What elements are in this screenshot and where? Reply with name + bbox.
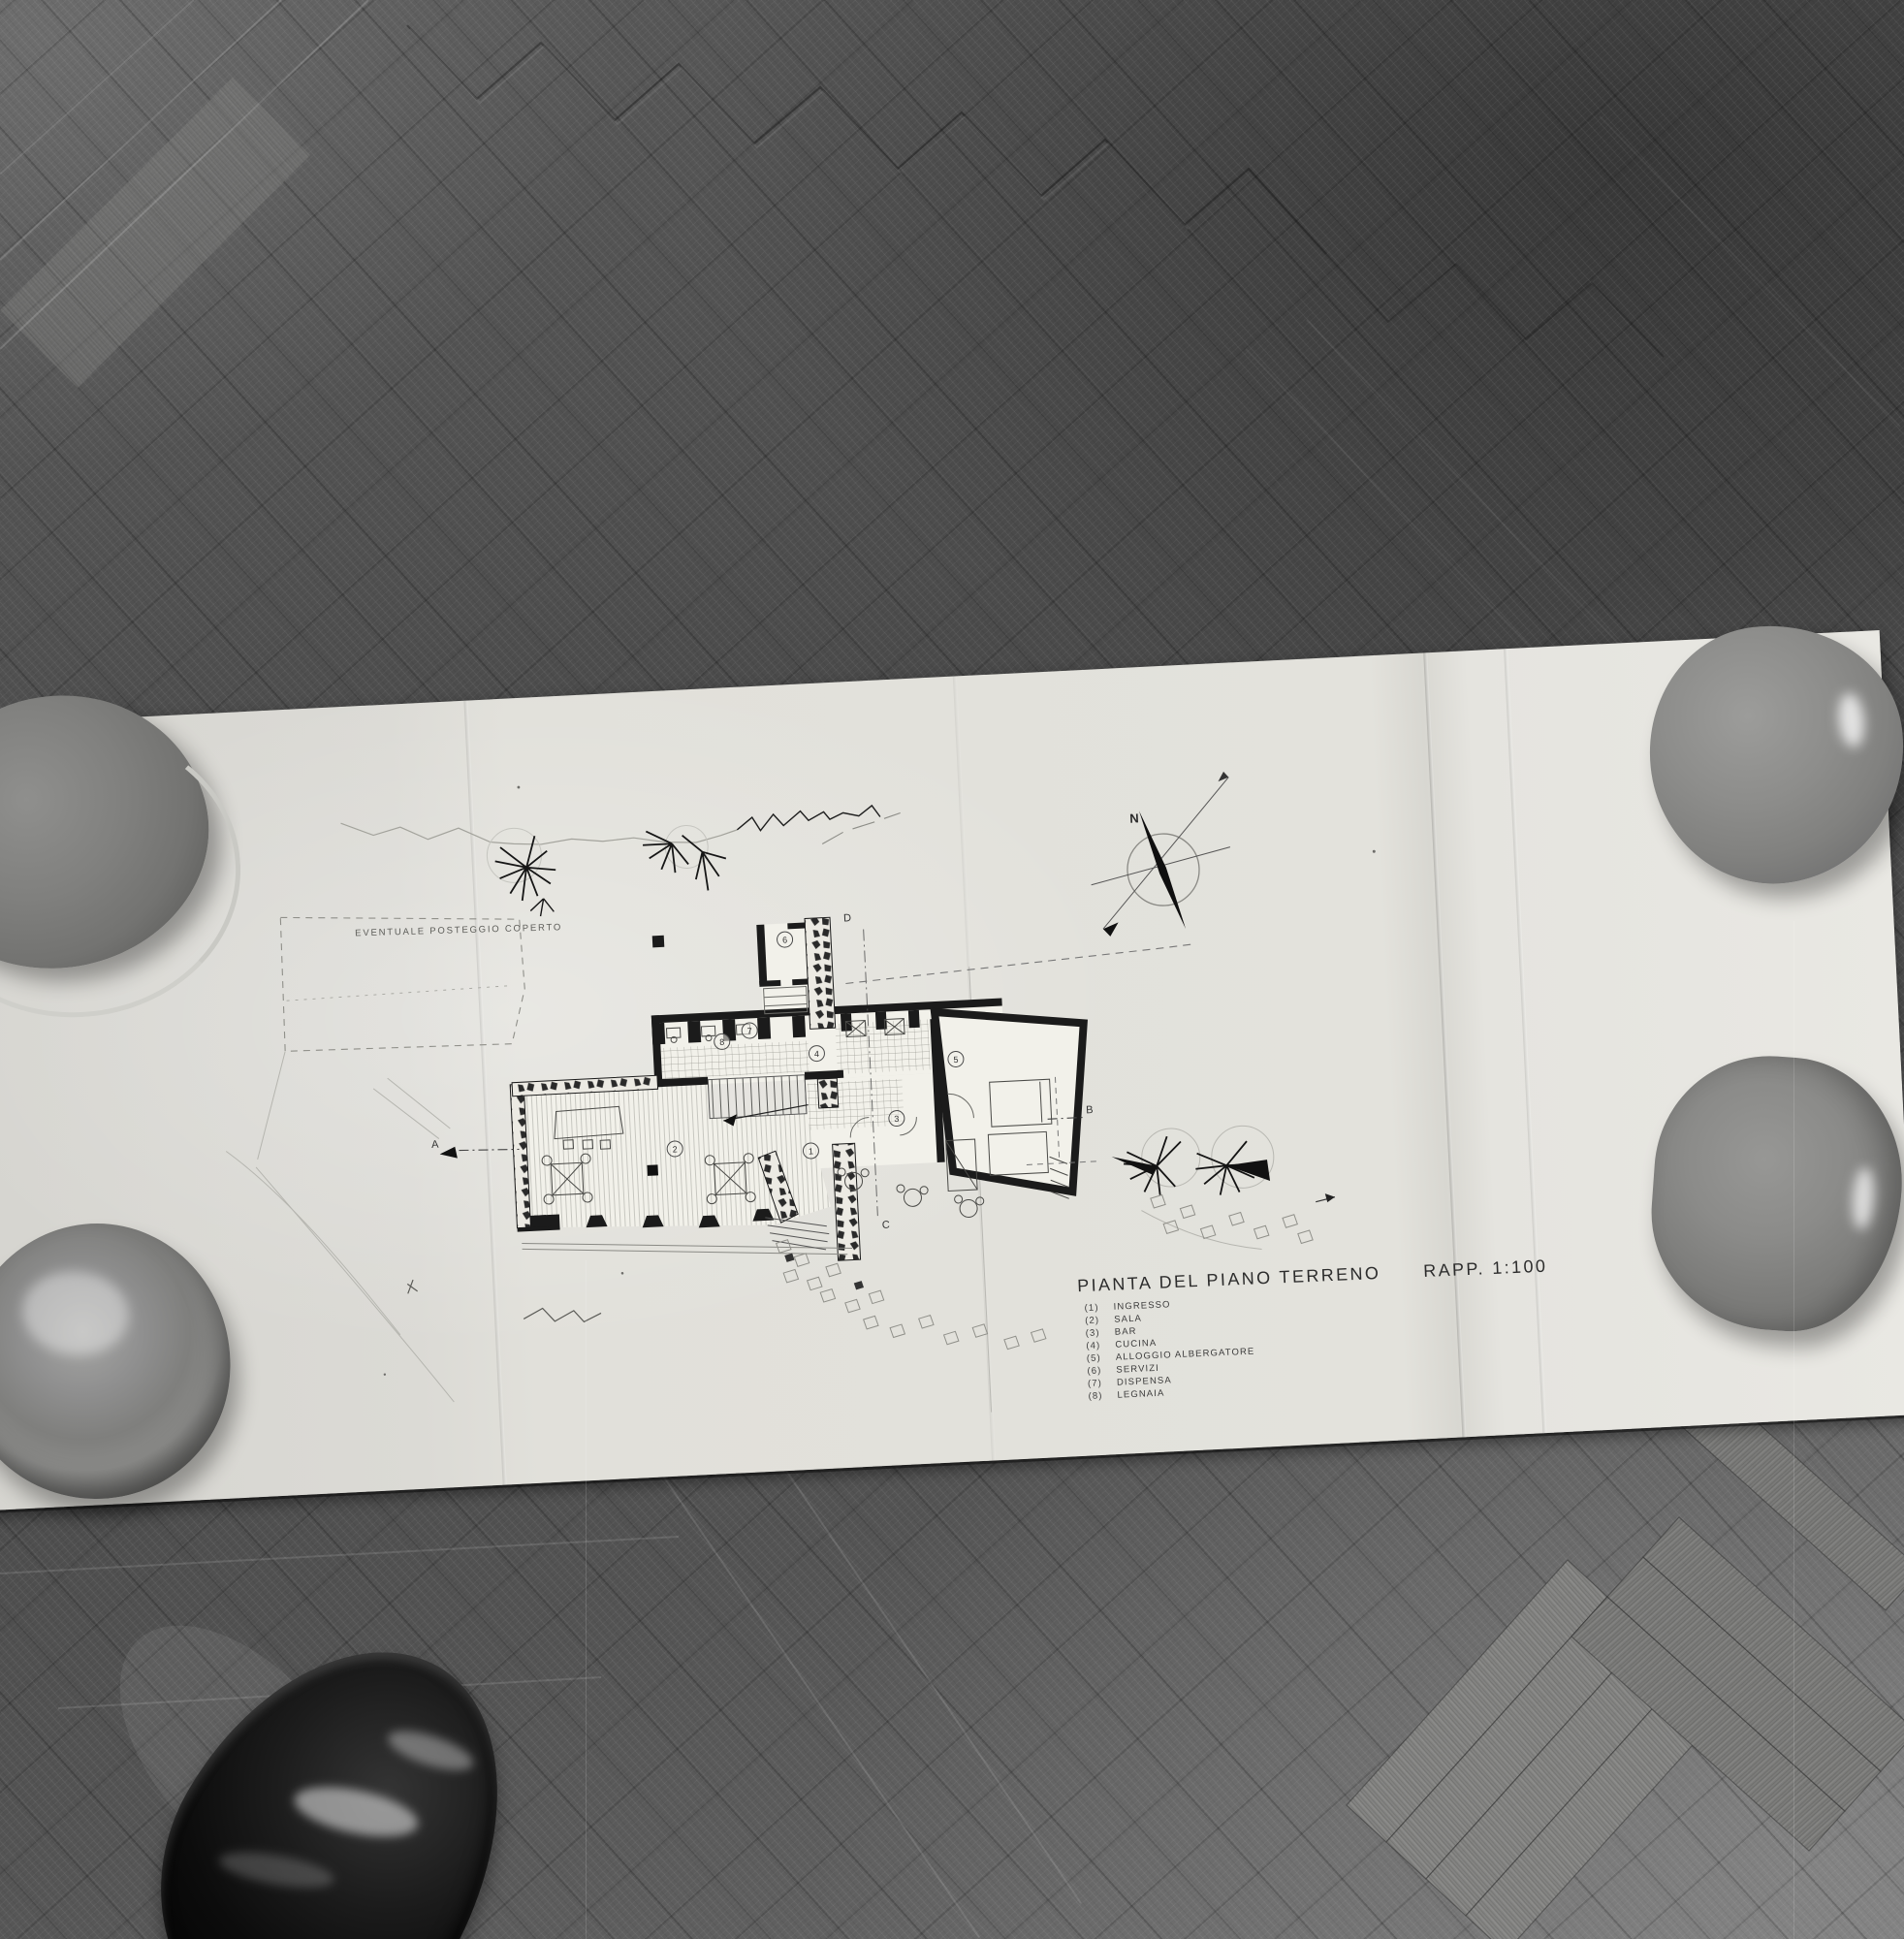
shoe-highlight [217,1846,336,1894]
terrain-sketch [341,796,905,927]
zigzag-seam-light [410,29,1188,229]
shoe-highlight [384,1723,478,1778]
trees-right [1110,1121,1337,1253]
plan-legend: (1)INGRESSO (2)SALA (3)BAR (4)CUCINA (5)… [1084,1295,1256,1403]
bowl-highlight [1836,692,1867,748]
bowl-highlight [1851,1167,1876,1230]
topleft-seams [0,0,368,349]
section-label-b: B [1086,1104,1094,1116]
section-label-c: C [882,1220,891,1231]
zigzag-seam [407,25,1326,254]
tree-symbol [530,898,555,916]
compass-rose [1086,772,1236,938]
tree-symbol [493,835,556,902]
shoe-highlight [290,1778,422,1846]
parking-plot-innerline [286,986,509,1001]
rock-sketch [736,806,880,832]
bowl-highlight [18,1266,133,1360]
section-label-a: A [431,1139,439,1151]
building-floors [511,908,1094,1237]
drawing-sheet: PIANTA DEL PIANO TERRENO RAPP. 1:100 (1)… [0,630,1904,1512]
film-scratch [586,1260,587,1939]
photo-scene: PIANTA DEL PIANO TERRENO RAPP. 1:100 (1)… [0,0,1904,1939]
compass-north-label: N [1129,811,1139,825]
fireplace [647,1164,658,1176]
terrace-and-stones [522,1204,1047,1373]
chevron-planks [1347,1356,1904,1939]
film-scratch [1793,921,1794,1939]
tree-symbol [682,834,728,892]
pencil-squiggle [407,1271,601,1331]
section-label-d: D [843,912,852,924]
topleft-planks [0,78,310,388]
floor-plan-drawing [0,630,1904,1512]
zigzag-seam-right [1326,254,1664,357]
